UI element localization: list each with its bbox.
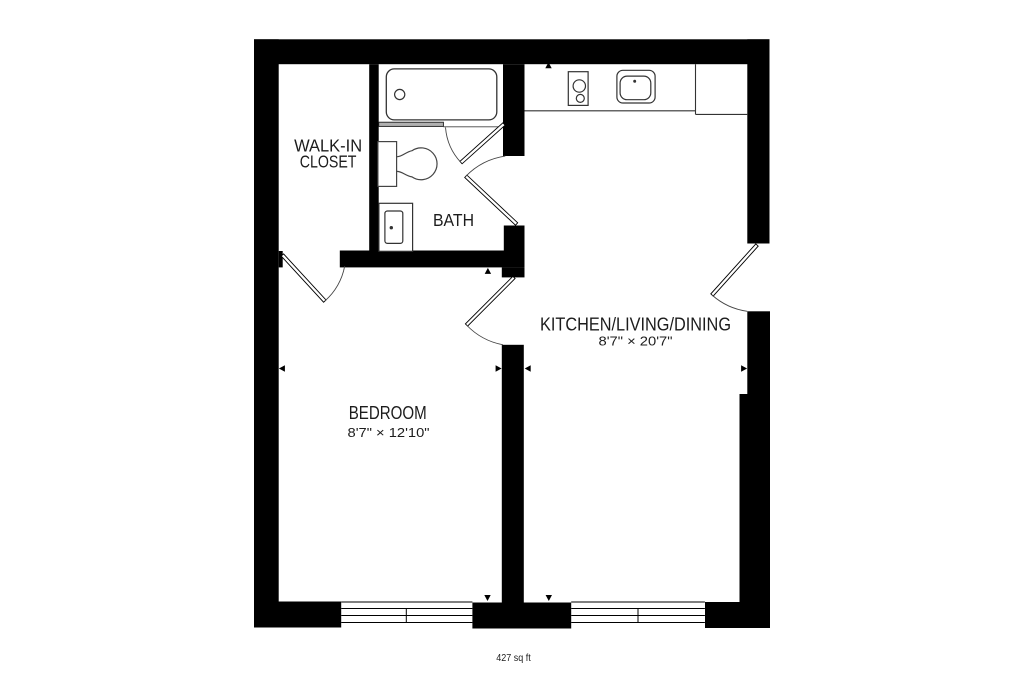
- svg-text:BEDROOM: BEDROOM: [349, 403, 427, 423]
- svg-text:427 sq ft: 427 sq ft: [496, 652, 531, 664]
- svg-text:KITCHEN/LIVING/DINING: KITCHEN/LIVING/DINING: [540, 315, 731, 335]
- svg-text:8'7" × 20'7": 8'7" × 20'7": [599, 334, 673, 349]
- svg-text:CLOSET: CLOSET: [300, 152, 357, 172]
- svg-text:8'7" × 12'10": 8'7" × 12'10": [348, 425, 430, 440]
- svg-text:BATH: BATH: [433, 210, 474, 230]
